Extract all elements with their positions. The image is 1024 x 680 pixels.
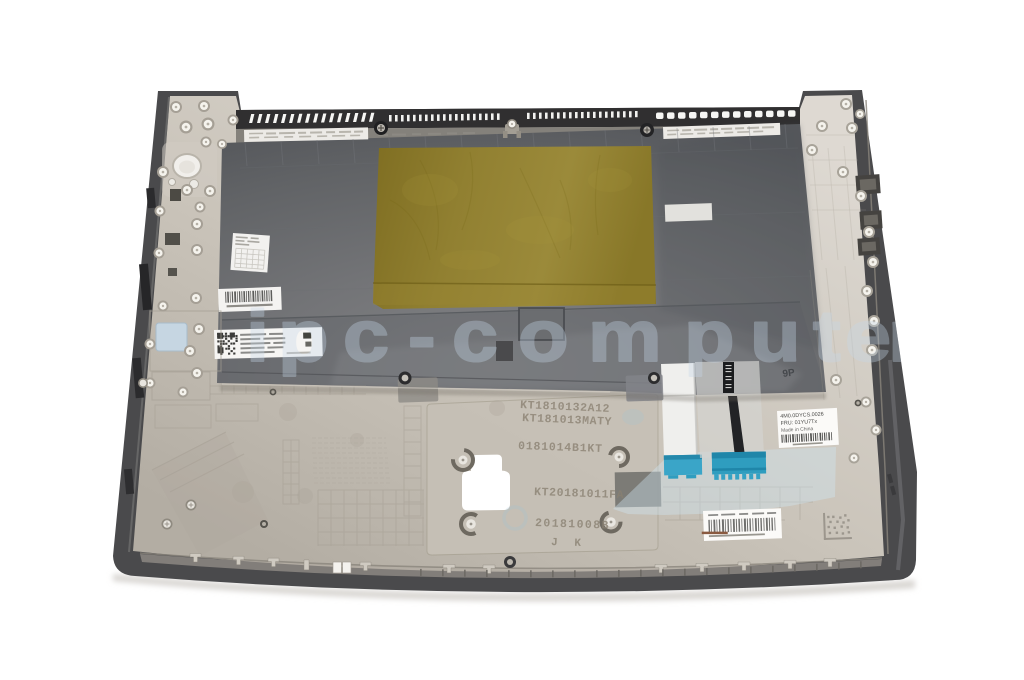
svg-text:20181008B: 20181008B bbox=[535, 517, 610, 533]
svg-text:J K: J K bbox=[551, 537, 586, 550]
